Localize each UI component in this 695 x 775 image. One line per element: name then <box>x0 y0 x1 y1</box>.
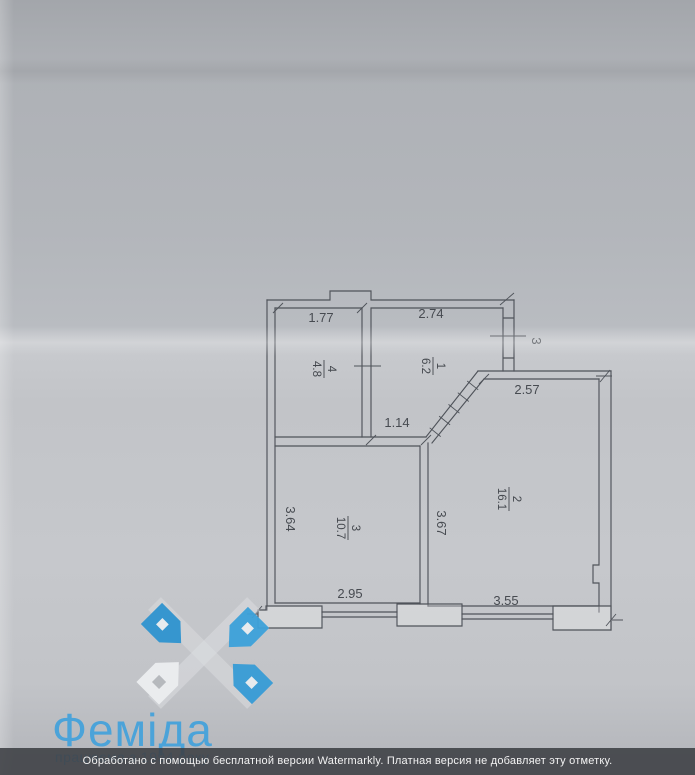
floor-plan-walls <box>247 291 623 630</box>
dimension-ticks <box>247 293 623 626</box>
watermark-bar: Обработано с помощью бесплатной версии W… <box>0 748 695 775</box>
room-labels: 4 4.8 1 6.2 2 16.1 3 10.7 <box>310 357 522 540</box>
dim-right-upper: 3 <box>529 337 544 344</box>
room-number: 1 <box>434 363 446 369</box>
wall-room3-room2 <box>420 443 428 606</box>
window-pier-right <box>553 606 611 630</box>
room-number: 4 <box>325 366 337 373</box>
room-number: 2 <box>510 496 522 502</box>
window-right <box>462 614 553 619</box>
watermark-text: Обработано с помощью бесплатной версии W… <box>83 755 613 767</box>
room-area: 4.8 <box>310 361 322 377</box>
scanned-floor-plan-photo: 1.77 2.74 3 2.57 1.14 3.64 3.67 2.95 3.5… <box>0 0 695 775</box>
wall-room4-room1 <box>362 308 371 437</box>
room-label-4: 4 4.8 <box>310 360 337 378</box>
room-label-1: 1 6.2 <box>419 357 446 375</box>
window-pier-middle <box>397 604 462 626</box>
dim-left-height: 3.64 <box>283 506 298 531</box>
wall-right-inner <box>593 379 599 612</box>
room-label-2: 2 16.1 <box>495 487 522 511</box>
dim-room4-width: 1.77 <box>308 310 333 325</box>
wall-room2-top <box>478 371 611 379</box>
room-area: 16.1 <box>495 488 507 510</box>
dim-inner-height: 3.67 <box>434 510 449 535</box>
floor-plan-drawing: 1.77 2.74 3 2.57 1.14 3.64 3.67 2.95 3.5… <box>0 0 695 775</box>
femida-logo <box>136 597 273 709</box>
dim-room1-width: 2.74 <box>418 306 443 321</box>
room-number: 3 <box>349 525 361 531</box>
dim-room2-top: 2.57 <box>514 382 539 397</box>
dimension-labels: 1.77 2.74 3 2.57 1.14 3.64 3.67 2.95 3.5… <box>283 306 544 608</box>
window-left <box>322 612 397 617</box>
dim-room3-bottom: 2.95 <box>337 586 362 601</box>
room-area: 10.7 <box>334 517 346 539</box>
dim-hall-width: 1.14 <box>384 415 409 430</box>
room-area: 6.2 <box>419 358 431 374</box>
diagonal-hatch <box>430 381 479 437</box>
wall-top-outer <box>267 291 514 300</box>
dim-room2-bottom: 3.55 <box>493 593 518 608</box>
wall-hall-band <box>275 437 426 446</box>
window-pier-left <box>258 606 322 628</box>
room-label-3: 3 10.7 <box>334 516 361 540</box>
wall-shaft-right <box>503 300 514 371</box>
